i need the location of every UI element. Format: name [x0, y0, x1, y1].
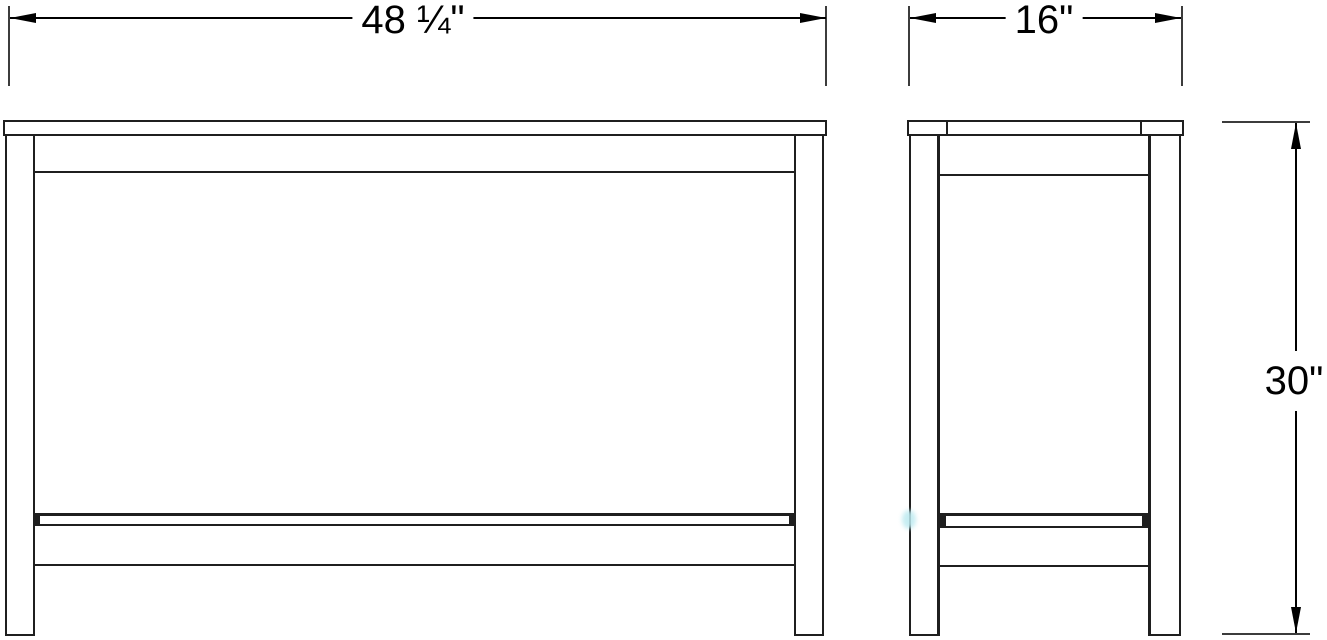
- height-dimension-label: 30": [1263, 351, 1326, 411]
- cyan-smudge-artifact: [902, 510, 916, 529]
- width-arrow-left-icon: [10, 13, 36, 23]
- side-tabletop-seam-right: [1140, 122, 1142, 134]
- depth-arrow-left-icon: [910, 13, 936, 23]
- depth-arrow-right-icon: [1155, 13, 1181, 23]
- depth-dimension-label: 16": [1006, 0, 1083, 45]
- front-shelf-edge: [35, 513, 794, 526]
- side-lower-rail-line: [940, 565, 1148, 567]
- front-left-leg: [5, 136, 35, 636]
- side-tabletop-seam-left: [946, 122, 948, 134]
- height-arrow-up-icon: [1291, 123, 1301, 149]
- depth-extension-line-right: [1181, 6, 1183, 86]
- front-right-leg: [794, 136, 824, 636]
- side-tabletop: [907, 120, 1184, 136]
- front-apron-line: [35, 171, 794, 173]
- front-lower-rail-line: [35, 564, 794, 566]
- height-extension-line-bottom: [1222, 633, 1310, 635]
- width-arrow-right-icon: [800, 13, 826, 23]
- front-tabletop: [3, 120, 827, 136]
- side-stretcher: [940, 513, 1148, 528]
- height-arrow-down-icon: [1291, 607, 1301, 633]
- width-dimension-label: 48 ¼": [352, 0, 473, 45]
- side-apron-line: [940, 174, 1148, 176]
- dimension-drawing: 48 ¼" 16" 30": [0, 0, 1327, 640]
- side-left-leg: [909, 136, 940, 636]
- side-right-leg: [1148, 136, 1181, 636]
